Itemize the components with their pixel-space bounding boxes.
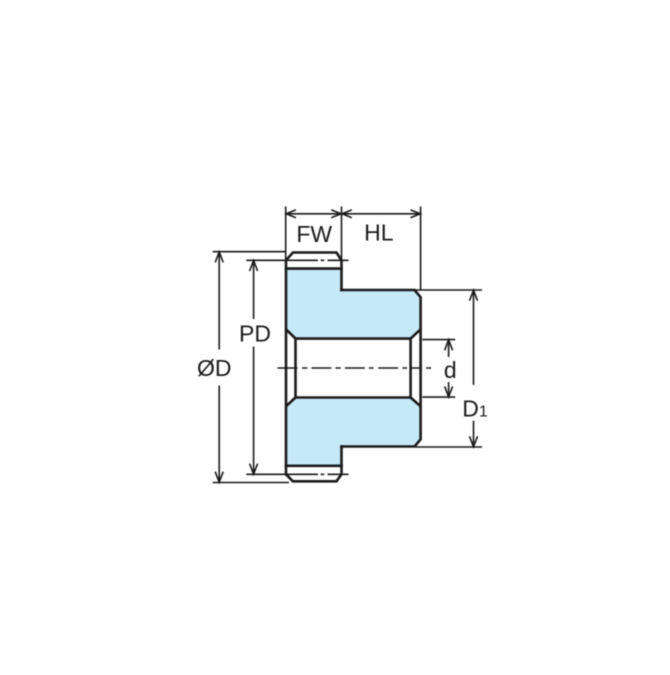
svg-text:PD: PD [239,320,271,346]
svg-text:HL: HL [364,220,394,246]
svg-text:FW: FW [296,221,332,247]
svg-text:ØD: ØD [197,355,232,381]
svg-text:d: d [444,357,457,383]
